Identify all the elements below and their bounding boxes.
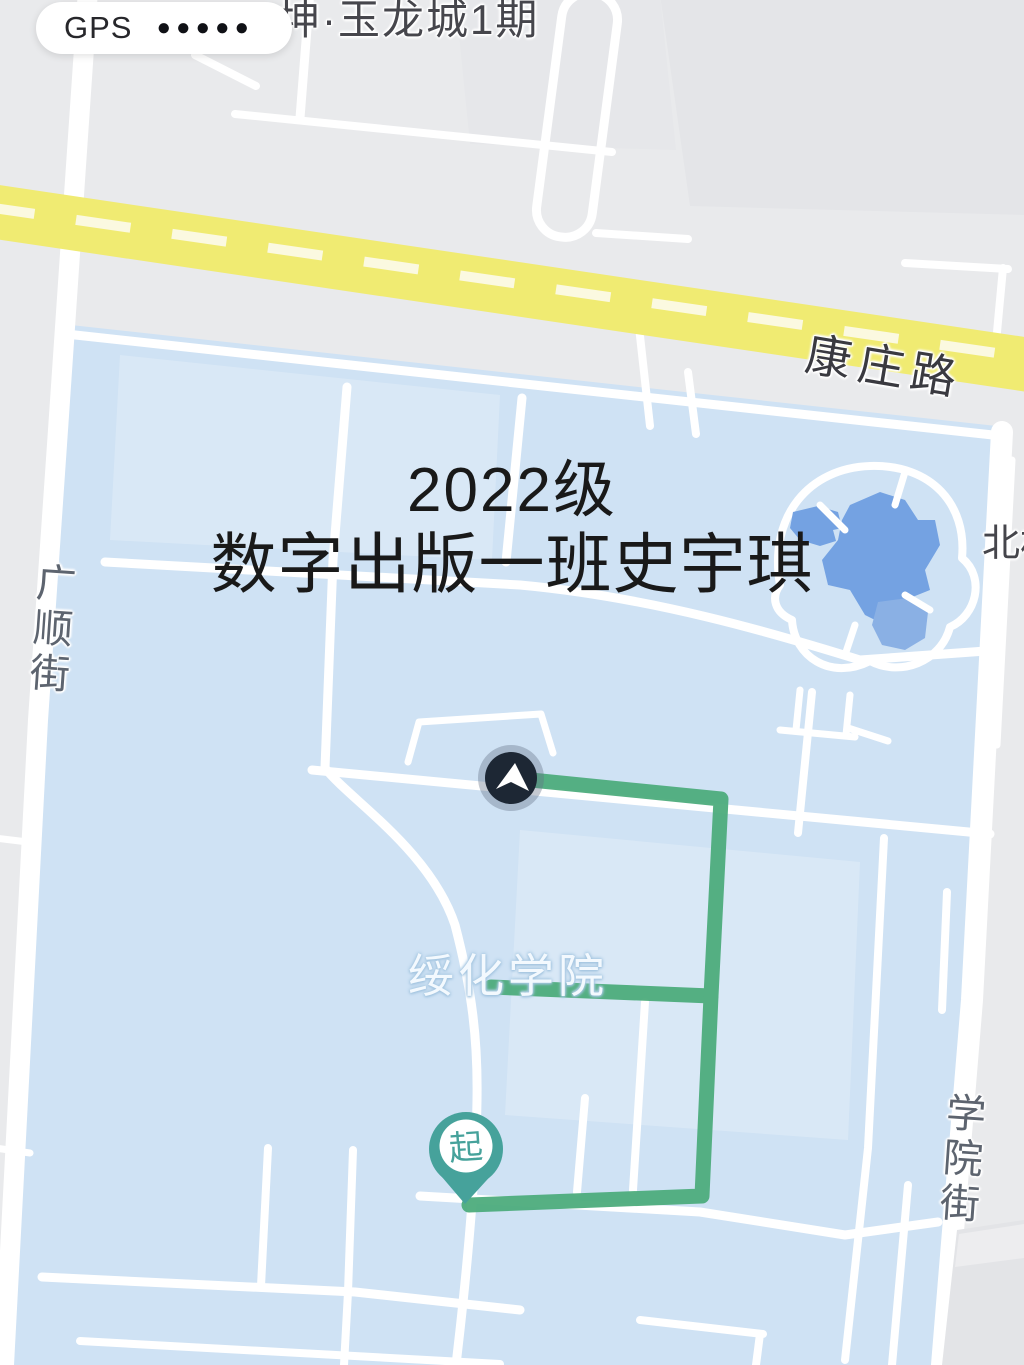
owner-watermark-line2: 数字出版一班史宇琪 bbox=[0, 526, 1024, 602]
run-tracking-share-screen: 起 坤·玉龙城1期 康庄路 广顺街 学院街 绥化学院 北村 2022级 数字出版… bbox=[0, 0, 1024, 1365]
campus-label: 绥化学院 bbox=[408, 940, 608, 1006]
owner-watermark: 2022级 数字出版一班史宇琪 bbox=[0, 456, 1024, 602]
gps-signal-dots: ●●●●● bbox=[156, 16, 253, 40]
start-pin-label: 起 bbox=[448, 1128, 485, 1168]
owner-watermark-line1: 2022级 bbox=[0, 456, 1024, 526]
position-marker[interactable] bbox=[478, 745, 544, 811]
gps-label: GPS bbox=[64, 10, 132, 46]
right-street-label: 学院街 bbox=[925, 1090, 992, 1229]
gps-status-badge: GPS ●●●●● bbox=[36, 2, 292, 54]
map-canvas[interactable]: 起 bbox=[0, 0, 1024, 1365]
residential-label: 坤·玉龙城1期 bbox=[278, 0, 539, 47]
